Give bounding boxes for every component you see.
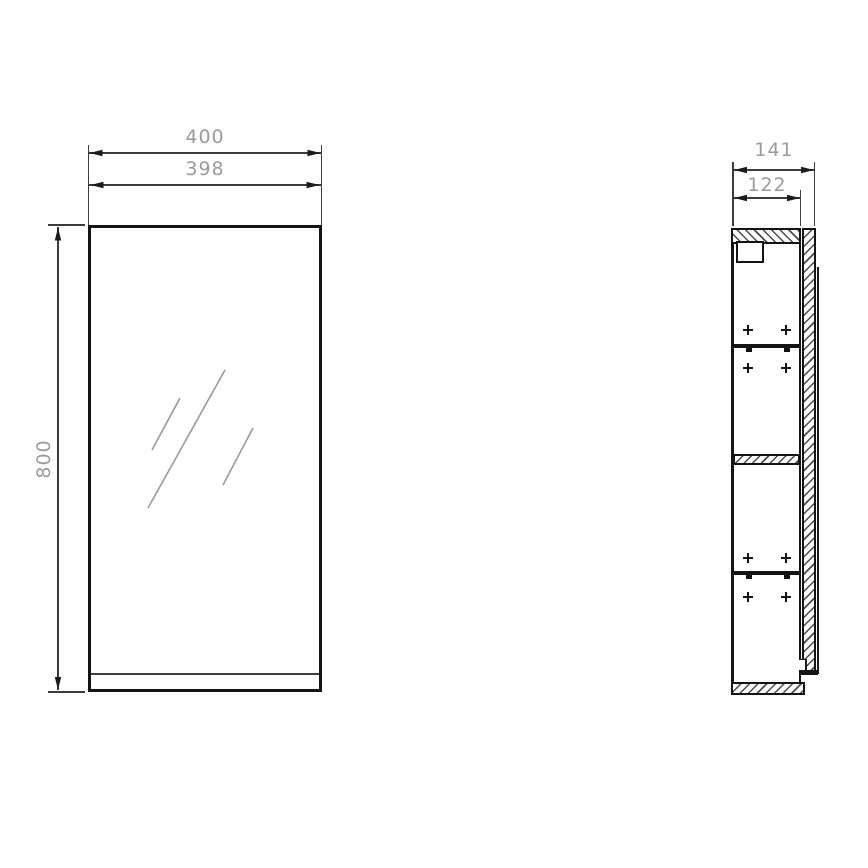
dimension-label-141: 141 [733,139,815,161]
shelf-pin [746,575,752,580]
shelf-pin-cross-icon [781,553,791,563]
side-bottom-panel [731,682,805,695]
shelf-pin-cross-icon [781,363,791,373]
shelf-pin [746,348,752,353]
extension-line [321,145,322,225]
extension-line [800,190,801,226]
dimension-line-400 [88,152,322,153]
side-door-bottom-notch [799,659,807,670]
dimension-line-398 [89,184,321,185]
dimension-label-800: 800 [33,425,55,493]
shelf-pin-cross-icon [743,553,753,563]
dimension-line-122 [733,197,801,198]
front-view [88,225,322,692]
shelf-pin-cross-icon [743,363,753,373]
dimension-label-122: 122 [733,174,801,196]
shelf-pin-cross-icon [743,325,753,335]
side-mirror-glass-line [817,267,819,674]
extension-line [48,691,85,692]
dimension-line-141 [733,169,815,170]
dimension-label-398: 398 [88,158,322,180]
front-door-bottom-line [91,673,319,675]
side-door-bottom-edge [800,670,818,675]
dimension-line-800 [57,227,58,690]
technical-drawing-sheet: 400 398 800 141 122 [0,0,868,868]
extension-line [814,162,815,226]
extension-line [48,224,85,225]
dimension-label-400: 400 [88,126,322,148]
side-top-profile-box [736,241,764,263]
shelf-pin-cross-icon [781,325,791,335]
shelf-pin-cross-icon [781,592,791,602]
side-mirror-door-section [802,228,816,674]
side-fixed-shelf [733,454,800,465]
shelf-pin [784,575,790,580]
extension-line [88,145,89,225]
shelf-pin [784,348,790,353]
extension-line [732,162,733,226]
shelf-pin-cross-icon [743,592,753,602]
